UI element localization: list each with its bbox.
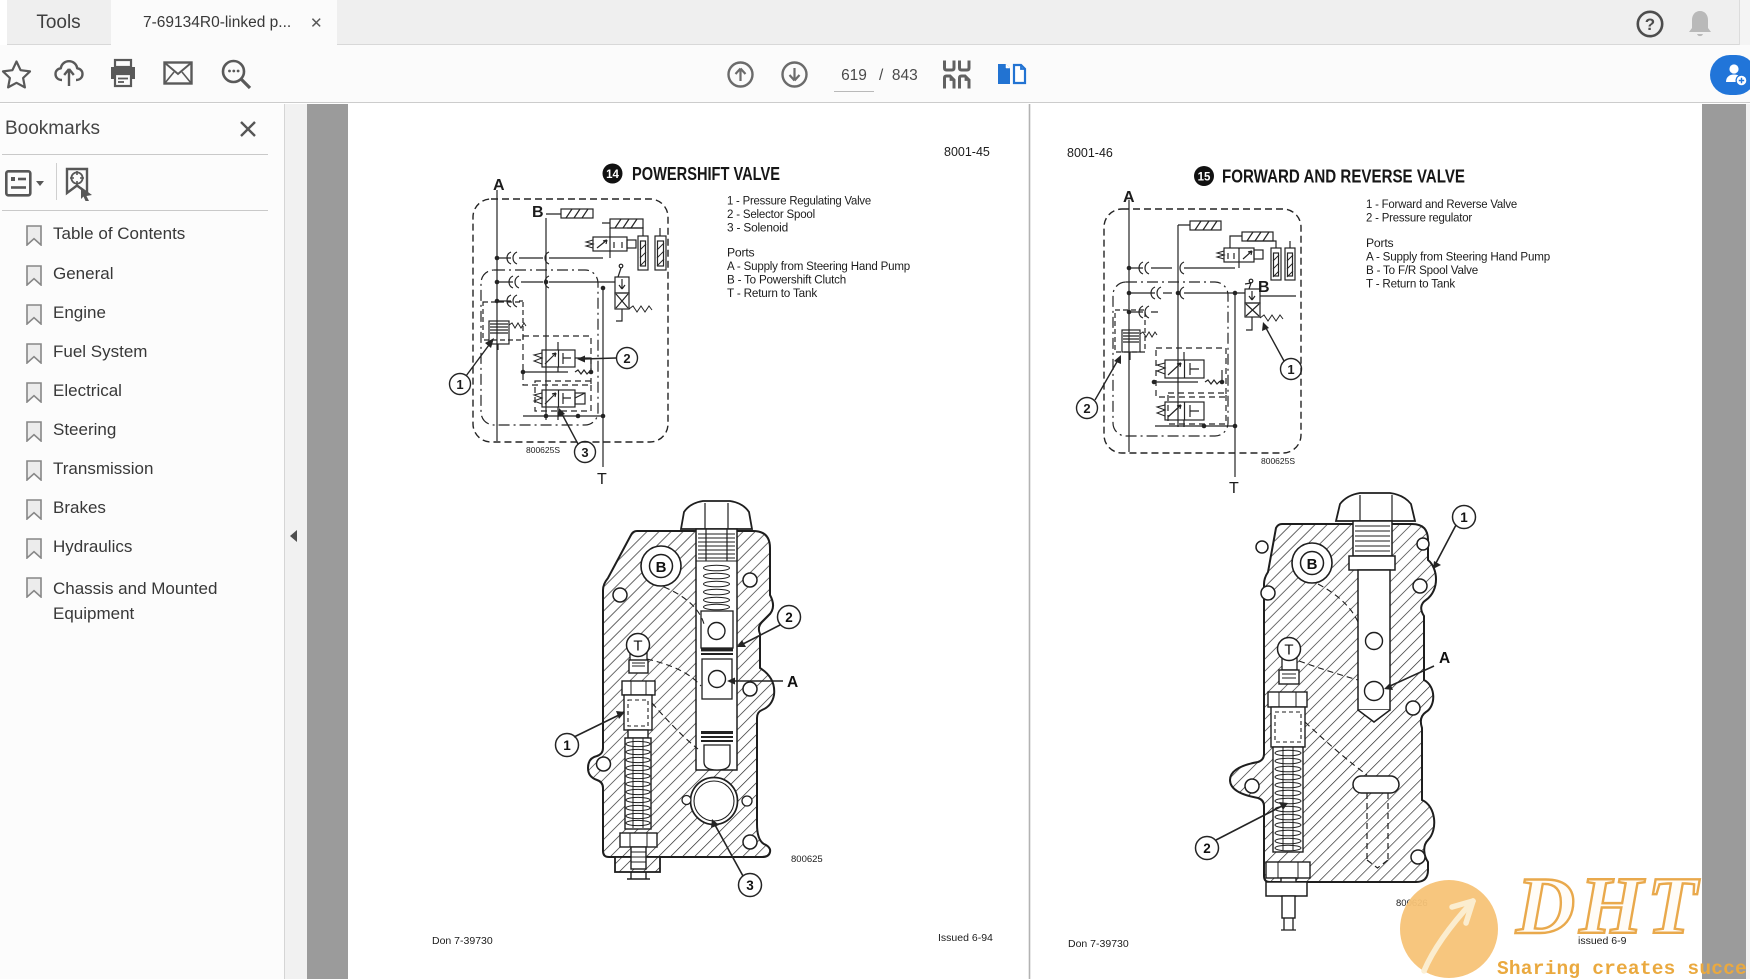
svg-text:2: 2 [1083, 401, 1090, 416]
svg-text:1: 1 [563, 738, 571, 753]
svg-text:2: 2 [1203, 841, 1211, 856]
svg-text:A: A [1439, 650, 1450, 667]
svg-text:Ports: Ports [727, 246, 755, 260]
svg-text:2 - Selector Spool: 2 - Selector Spool [727, 207, 815, 221]
svg-text:1: 1 [456, 377, 463, 392]
svg-text:800625S: 800625S [1261, 456, 1295, 466]
svg-text:T: T [633, 638, 642, 655]
svg-text:2: 2 [785, 610, 793, 625]
svg-text:FORWARD AND REVERSE VALVE: FORWARD AND REVERSE VALVE [1222, 166, 1465, 187]
svg-text:B: B [656, 559, 667, 576]
svg-text:1 - Forward and Reverse Valve: 1 - Forward and Reverse Valve [1366, 197, 1517, 211]
svg-text:8001-45: 8001-45 [944, 145, 990, 159]
svg-text:1: 1 [1460, 510, 1468, 525]
svg-text:8001-46: 8001-46 [1067, 146, 1113, 160]
svg-text:Ports: Ports [1366, 236, 1394, 250]
svg-text:3: 3 [581, 445, 588, 460]
svg-text:A - Supply from Steering Hand: A - Supply from Steering Hand Pump [727, 259, 910, 273]
svg-text:A: A [493, 177, 505, 194]
svg-text:POWERSHIFT VALVE: POWERSHIFT VALVE [632, 163, 780, 184]
svg-text:?: ? [1645, 15, 1655, 34]
svg-text:800625S: 800625S [526, 445, 560, 455]
svg-text:3: 3 [746, 878, 754, 893]
svg-text:T: T [1284, 642, 1293, 659]
svg-text:B - To Powershift Clutch: B - To Powershift Clutch [727, 273, 846, 287]
svg-text:B - To F/R Spool Valve: B - To F/R Spool Valve [1366, 263, 1478, 277]
svg-text:A: A [787, 674, 798, 691]
svg-text:1: 1 [1287, 362, 1294, 377]
svg-text:T - Return to Tank: T - Return to Tank [727, 286, 818, 300]
svg-text:Sharing creates success: Sharing creates success [1497, 958, 1750, 979]
svg-text:Don 7-39730: Don 7-39730 [1068, 938, 1129, 950]
svg-text:T: T [597, 471, 607, 488]
svg-text:B: B [532, 204, 544, 221]
svg-text:A - Supply from Steering Hand: A - Supply from Steering Hand Pump [1366, 250, 1550, 264]
svg-text:800625: 800625 [791, 854, 823, 865]
svg-text:1 - Pressure Regulating Valve: 1 - Pressure Regulating Valve [727, 194, 871, 208]
svg-text:T: T [1229, 480, 1239, 497]
svg-text:DHT: DHT [1515, 860, 1701, 951]
svg-text:B: B [1307, 556, 1318, 573]
svg-text:15: 15 [1198, 172, 1211, 184]
svg-text:Issued 6-94: Issued 6-94 [938, 932, 993, 944]
svg-text:A: A [1123, 189, 1135, 206]
svg-text:T - Return to Tank: T - Return to Tank [1366, 277, 1456, 291]
svg-text:Don 7-39730: Don 7-39730 [432, 935, 493, 947]
svg-text:2: 2 [623, 351, 630, 366]
svg-text:2 - Pressure regulator: 2 - Pressure regulator [1366, 211, 1472, 225]
svg-text:3 - Solenoid: 3 - Solenoid [727, 221, 788, 235]
svg-text:B: B [1258, 279, 1270, 296]
svg-text:14: 14 [606, 169, 619, 181]
